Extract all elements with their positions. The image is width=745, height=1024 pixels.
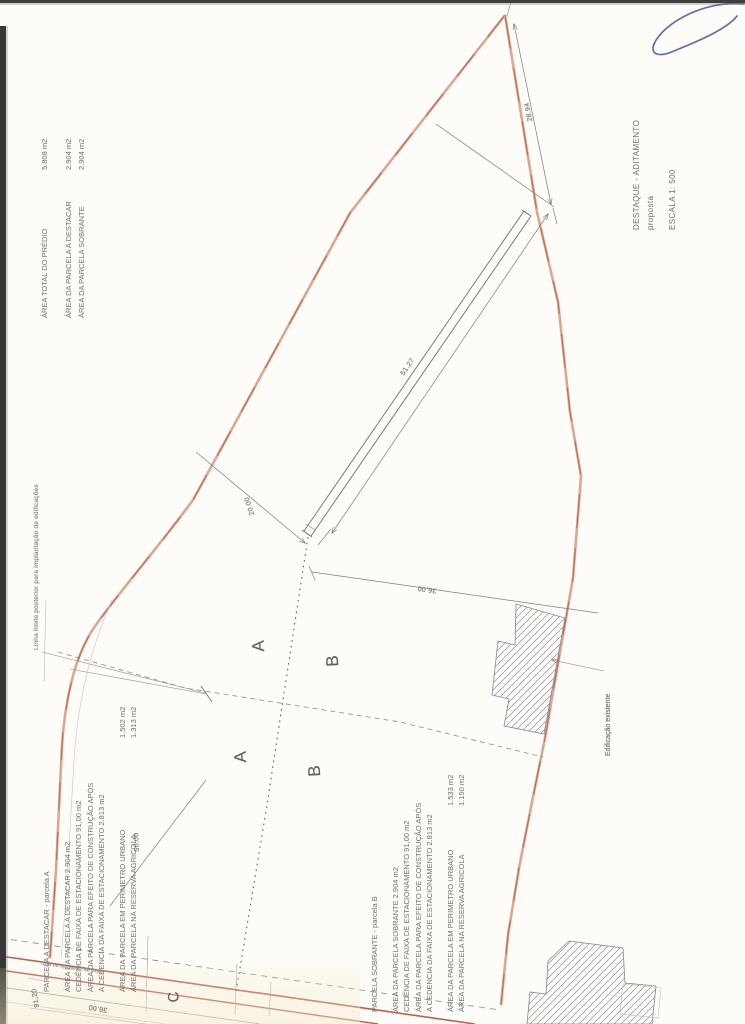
- parcel-a-letter-lower: A: [231, 751, 252, 763]
- parcela-a-label: ÁREA DA PARCELA NA RESERVA AGRICOLA: [128, 738, 140, 992]
- parcela-b-line: ÁREA DA PARCELA SOBRANTE 2.904 m2: [390, 760, 402, 1012]
- parcela-b-value: 1.150 m2: [456, 760, 468, 806]
- parcela-a-line: A CEDENCIA DA FAIXA DE ESTACIONAMENTO 2.…: [96, 692, 108, 992]
- parcela-b-line: CEDÊNCIA DE FAIXA DE ESTACIONAMENTO 91,0…: [401, 760, 413, 1012]
- summary-value: 5.808 m2: [38, 118, 51, 170]
- parcela-a-line: ÁREA DA PARCELA A DESTACAR 2.904 m2: [62, 692, 74, 992]
- summary-label: ÁREA DA PARCELA A DESTACAR: [62, 170, 75, 318]
- back-limit-line-label: Linha limite posterior para implantação …: [33, 426, 40, 650]
- scan-edge-top-shadow: [0, 3, 745, 5]
- drawing-subtitle: proposta: [644, 96, 658, 230]
- summary-value: 2.904 m2: [75, 118, 88, 170]
- parcela-b-label: ÁREA DA PARCELA NA RESERVA AGRICOLA: [456, 806, 468, 1012]
- existing-building-label: Edificação existente: [605, 670, 612, 756]
- parcela-a-value: 1.502 m2: [117, 692, 129, 738]
- parcela-a-line: ÁREA DA PARCELA PARA EFEITO DE CONSTRUÇÃ…: [85, 692, 97, 992]
- drawing-title: DESTAQUE - ADITAMENTO: [630, 96, 644, 230]
- parcela-b-block: PARCELA SOBRANTE - parcela B ÁREA DA PAR…: [369, 760, 468, 1012]
- parcela-b-value: 1.533 m2: [445, 760, 457, 806]
- road-letter-c: C: [165, 991, 183, 1004]
- summary-label: ÁREA TOTAL DO PRÉDIO: [38, 170, 51, 318]
- parcela-b-row: ÁREA DA PARCELA NA RESERVA AGRICOLA 1.15…: [456, 760, 468, 1012]
- dim-left-depth: 50.00: [133, 832, 141, 851]
- scan-edge-left-shadow: [6, 26, 8, 1024]
- parcela-a-value: 1.313 m2: [128, 692, 140, 738]
- summary-label: ÁREA DA PARCELA SOBRANTE: [75, 170, 88, 318]
- scanned-site-plan: ÁREA TOTAL DO PRÉDIO 5.808 m2 ÁREA DA PA…: [0, 0, 745, 1024]
- parcela-b-title: PARCELA SOBRANTE - parcela B: [369, 760, 381, 1012]
- parcela-b-row: ÁREA DA PARCELA EM PERIMETRO URBANO 1.53…: [445, 760, 457, 1012]
- parcela-a-label: ÁREA DA PARCELA EM PERIMETRO URBANO: [117, 738, 129, 992]
- parcela-a-block: PARCELA A DESTACAR - parcela A ÁREA DA P…: [41, 692, 140, 992]
- parcel-a-letter-upper: A: [249, 640, 270, 652]
- parcela-b-line: ÁREA DA PARCELA PARA EFEITO DE CONSTRUÇÃ…: [413, 760, 425, 1012]
- parcela-b-label: ÁREA DA PARCELA EM PERIMETRO URBANO: [445, 806, 457, 1012]
- summary-row: ÁREA DA PARCELA SOBRANTE 2.904 m2: [75, 118, 88, 318]
- existing-building-2: [527, 941, 661, 1024]
- parcela-a-row: ÁREA DA PARCELA EM PERIMETRO URBANO 1.50…: [117, 692, 129, 992]
- parcela-b-line: A CEDENCIA DA FAIXA DE ESTACIONAMENTO 2.…: [424, 760, 436, 1012]
- summary-row: ÁREA DA PARCELA A DESTACAR 2.904 m2: [62, 118, 75, 318]
- parcela-a-title: PARCELA A DESTACAR - parcela A: [41, 692, 53, 992]
- summary-row: ÁREA TOTAL DO PRÉDIO 5.808 m2: [38, 118, 51, 318]
- pen-scribble: [653, 4, 744, 55]
- parcel-b-letter-upper: B: [323, 655, 344, 667]
- parcela-a-line: CEDÊNCIA DE FAIXA DE ESTACIONAMENTO 91,0…: [73, 692, 85, 992]
- parking-strip: [302, 210, 531, 537]
- parcel-division-dotted-line: [236, 537, 308, 992]
- title-block: DESTAQUE - ADITAMENTO proposta ESCALA 1:…: [630, 96, 680, 230]
- area-summary-block: ÁREA TOTAL DO PRÉDIO 5.808 m2 ÁREA DA PA…: [38, 118, 88, 318]
- parcel-b-letter-lower: B: [305, 765, 326, 777]
- summary-value: 2.904 m2: [62, 118, 75, 170]
- dimension-lines: [110, 24, 598, 906]
- drawing-scale: ESCALA 1: 500: [666, 96, 680, 230]
